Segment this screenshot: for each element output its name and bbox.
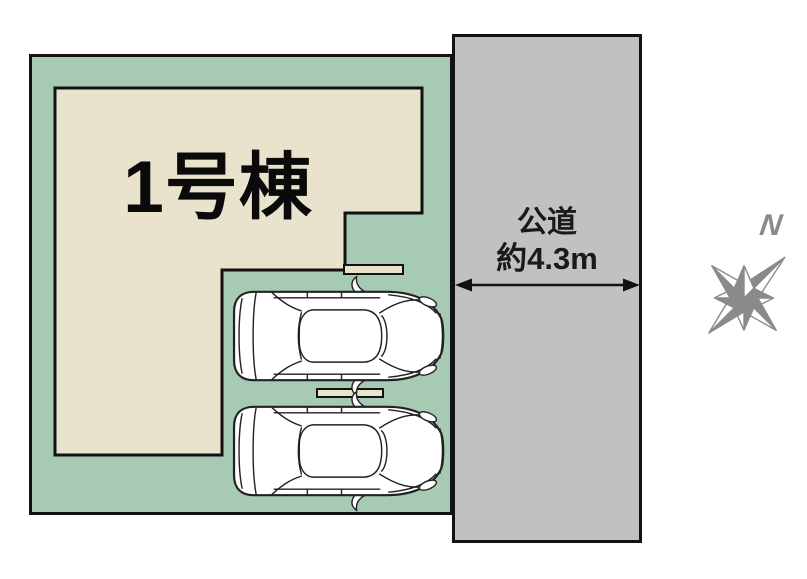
land-plot [29, 54, 453, 515]
building-label: 1号棟 [60, 150, 376, 227]
road-label: 公道 約4.3m [452, 206, 642, 277]
north-label: N [758, 209, 784, 243]
site-plan-canvas: 1号棟 公道 約4.3m N [0, 0, 807, 579]
compass-rose-icon [676, 224, 807, 365]
road-area [452, 34, 642, 543]
road-width-value: 約4.3m [452, 240, 642, 277]
road-name: 公道 [452, 206, 642, 240]
